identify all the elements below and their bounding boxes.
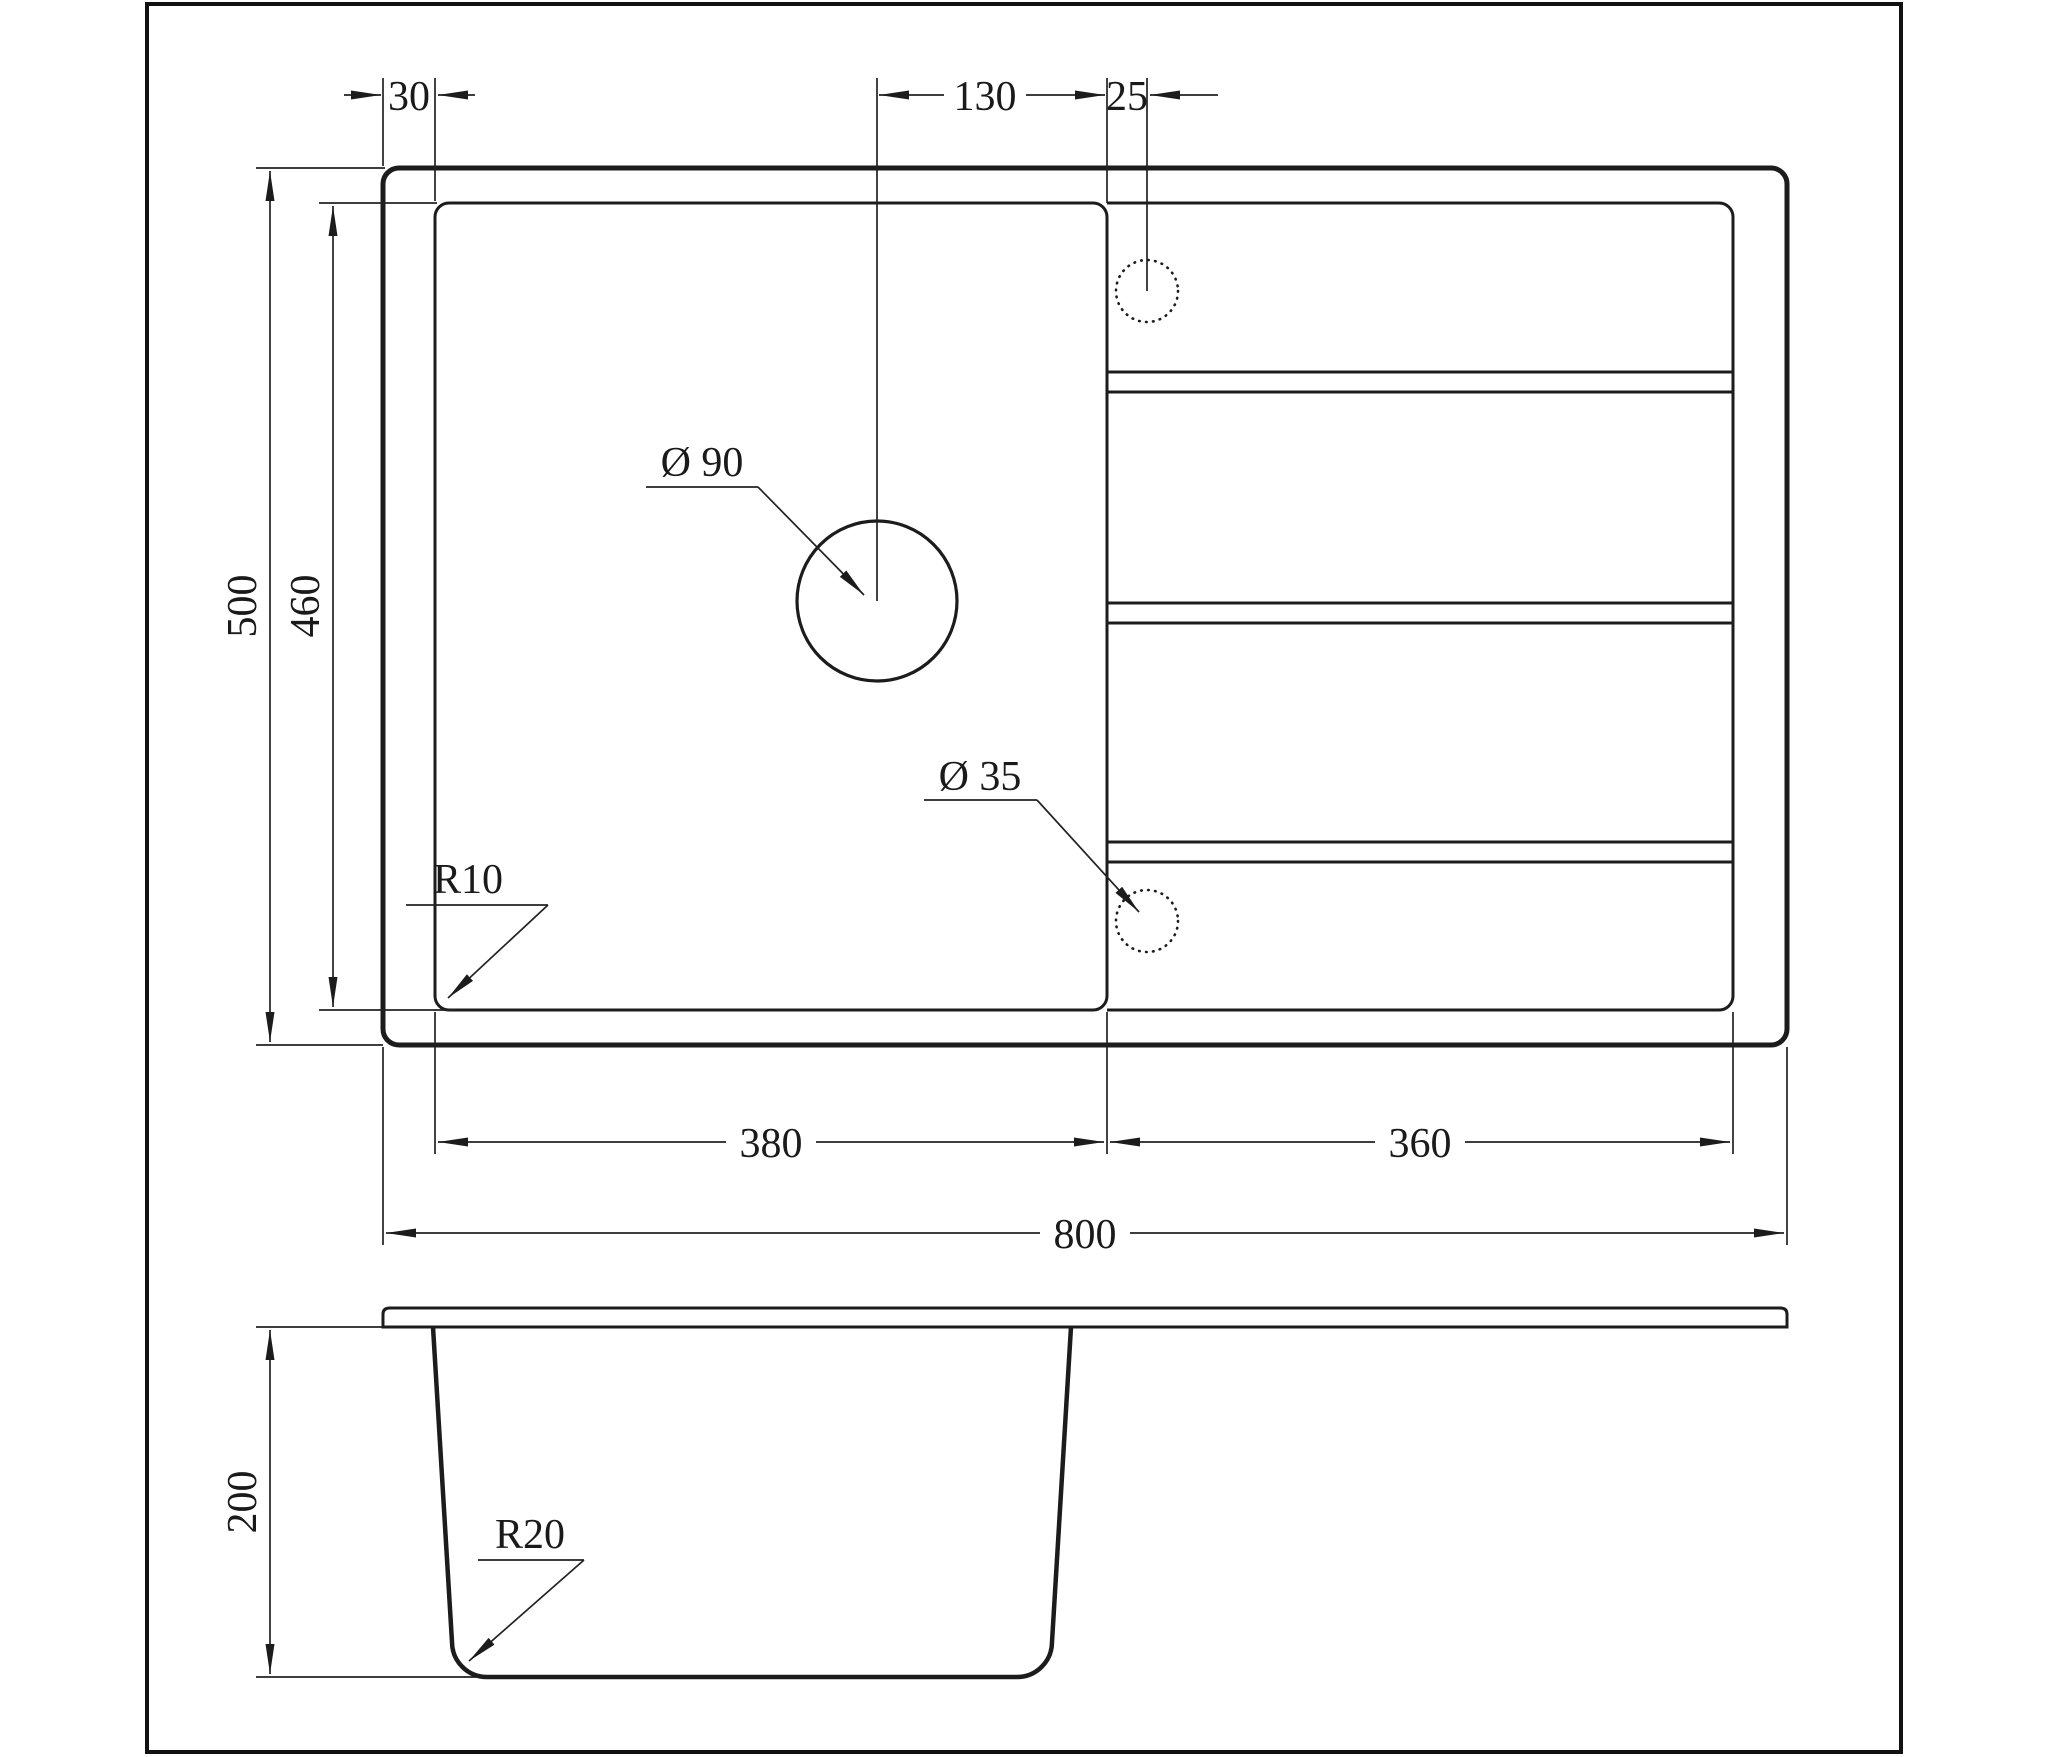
- section-bowl-profile: [433, 1327, 1071, 1677]
- plan-view: [383, 168, 1787, 1045]
- dim-tap-offset: 25: [1106, 74, 1218, 120]
- dim-bowl-depth: 460: [283, 206, 333, 1007]
- sink-technical-drawing: 30 130 25 500 460 380 360 800 200 Ø 90: [0, 0, 2048, 1757]
- tap-hole-label: Ø 35: [939, 754, 1022, 800]
- label-bowl-corner-radius: R10: [406, 857, 548, 998]
- dim-bowl-width: 380: [438, 1121, 1104, 1167]
- dim-left-margin-label: 30: [388, 74, 430, 120]
- label-bottom-corner-radius: R20: [469, 1512, 584, 1661]
- dim-drain-offset: 130: [879, 74, 1105, 120]
- dim-overall-depth-label: 500: [220, 575, 266, 638]
- dim-left-margin: 30: [344, 74, 475, 120]
- section-rim-plate: [383, 1308, 1787, 1327]
- label-drain-hole: Ø 90: [646, 440, 864, 595]
- dim-bowl-height: 200: [220, 1330, 270, 1674]
- drainboard-grooves: [1107, 372, 1733, 862]
- page-border: [147, 4, 1901, 1752]
- dim-drainboard-width-label: 360: [1389, 1121, 1452, 1167]
- dim-bowl-width-label: 380: [740, 1121, 803, 1167]
- dim-bowl-depth-label: 460: [283, 575, 329, 638]
- dim-tap-offset-label: 25: [1106, 74, 1148, 120]
- dim-overall-width-label: 800: [1054, 1212, 1117, 1258]
- dim-overall-depth: 500: [220, 171, 270, 1042]
- tap-hole-bottom: [1116, 890, 1178, 952]
- drainboard-outline: [1107, 203, 1733, 1010]
- dim-drainboard-width: 360: [1110, 1121, 1730, 1167]
- sink-outer-outline: [383, 168, 1787, 1045]
- bowl-corner-radius-label: R10: [433, 857, 503, 903]
- dim-overall-width: 800: [386, 1212, 1784, 1258]
- dim-drain-offset-label: 130: [954, 74, 1017, 120]
- section-view: [383, 1308, 1787, 1677]
- bowl-outline: [435, 203, 1107, 1010]
- bottom-corner-radius-label: R20: [495, 1512, 565, 1558]
- drain-hole-label: Ø 90: [661, 440, 744, 486]
- dim-bowl-height-label: 200: [220, 1471, 266, 1534]
- drawing-page: 30 130 25 500 460 380 360 800 200 Ø 90: [0, 0, 2048, 1757]
